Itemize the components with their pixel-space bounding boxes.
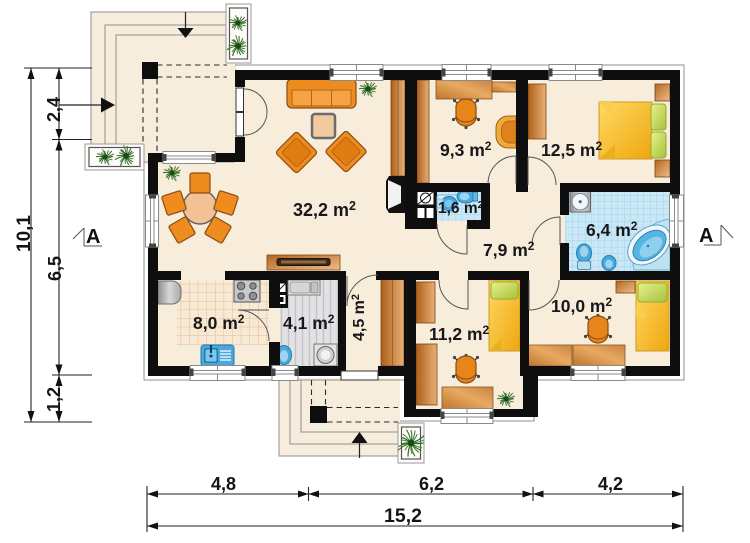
svg-text:4,8: 4,8 xyxy=(211,474,236,494)
svg-text:6,2: 6,2 xyxy=(419,474,444,494)
svg-text:10,0 m2: 10,0 m2 xyxy=(551,295,612,316)
svg-text:A: A xyxy=(86,226,100,248)
svg-text:4,1 m2: 4,1 m2 xyxy=(283,312,335,333)
svg-text:11,2 m2: 11,2 m2 xyxy=(429,323,490,344)
svg-text:9,3 m2: 9,3 m2 xyxy=(440,139,492,160)
svg-text:2,4: 2,4 xyxy=(44,97,64,122)
svg-text:10,1: 10,1 xyxy=(14,215,35,252)
svg-text:1,6 m2: 1,6 m2 xyxy=(438,199,484,217)
svg-text:8,0 m2: 8,0 m2 xyxy=(193,312,245,333)
svg-text:4,5 m2: 4,5 m2 xyxy=(350,294,368,341)
svg-text:4,2: 4,2 xyxy=(598,474,623,494)
svg-text:7,9 m2: 7,9 m2 xyxy=(483,239,535,260)
svg-text:6,5: 6,5 xyxy=(45,256,65,281)
svg-text:12,5 m2: 12,5 m2 xyxy=(541,139,602,160)
svg-text:15,2: 15,2 xyxy=(384,505,422,527)
svg-text:32,2 m2: 32,2 m2 xyxy=(293,199,356,220)
svg-text:1,2: 1,2 xyxy=(44,387,64,412)
svg-text:A: A xyxy=(699,225,713,247)
svg-text:6,4 m2: 6,4 m2 xyxy=(586,219,638,240)
